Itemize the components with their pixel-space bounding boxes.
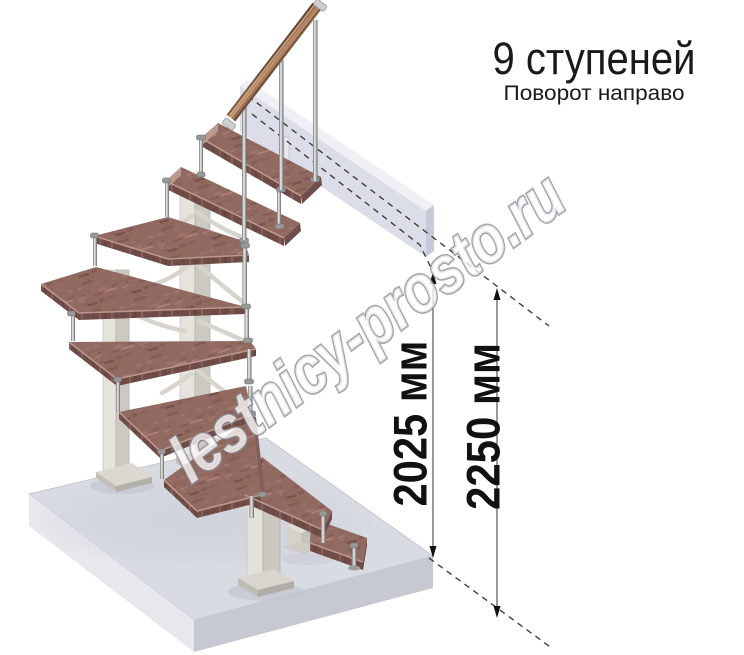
svg-text:Поворот направо: Поворот направо — [504, 82, 685, 105]
svg-text:9 ступеней: 9 ступеней — [493, 33, 696, 84]
svg-text:2250 мм: 2250 мм — [458, 343, 511, 510]
svg-text:2025 мм: 2025 мм — [385, 341, 438, 507]
